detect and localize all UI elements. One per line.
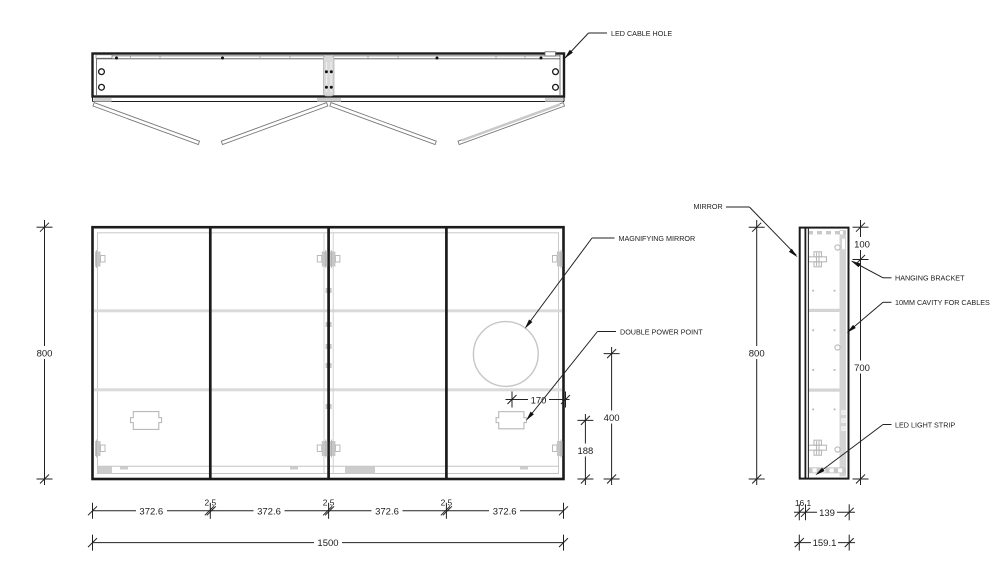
svg-text:372.6: 372.6 [257, 506, 281, 517]
svg-text:DOUBLE POWER POINT: DOUBLE POWER POINT [620, 327, 703, 336]
svg-text:1500: 1500 [317, 538, 338, 549]
svg-text:159.1: 159.1 [813, 538, 837, 549]
svg-text:10MM CAVITY FOR CABLES: 10MM CAVITY FOR CABLES [895, 298, 990, 307]
svg-text:800: 800 [749, 349, 765, 360]
svg-text:LED CABLE HOLE: LED CABLE HOLE [611, 29, 672, 38]
svg-text:2,5: 2,5 [204, 498, 216, 508]
svg-text:188: 188 [577, 446, 593, 457]
svg-text:400: 400 [604, 413, 620, 424]
svg-text:700: 700 [854, 363, 870, 374]
svg-text:800: 800 [37, 349, 53, 360]
svg-text:HANGING BRACKET: HANGING BRACKET [895, 274, 965, 283]
svg-text:16.1: 16.1 [795, 498, 812, 508]
svg-text:372.6: 372.6 [493, 506, 517, 517]
svg-text:139: 139 [819, 508, 835, 519]
svg-text:MIRROR: MIRROR [694, 202, 723, 211]
svg-text:2,5: 2,5 [323, 498, 335, 508]
svg-text:100: 100 [854, 240, 870, 251]
svg-text:372.6: 372.6 [375, 506, 399, 517]
svg-text:MAGNIFYING MIRROR: MAGNIFYING MIRROR [619, 234, 696, 243]
svg-text:LED LIGHT STRIP: LED LIGHT STRIP [895, 420, 955, 429]
svg-text:372.6: 372.6 [139, 506, 163, 517]
svg-text:2,5: 2,5 [441, 498, 453, 508]
